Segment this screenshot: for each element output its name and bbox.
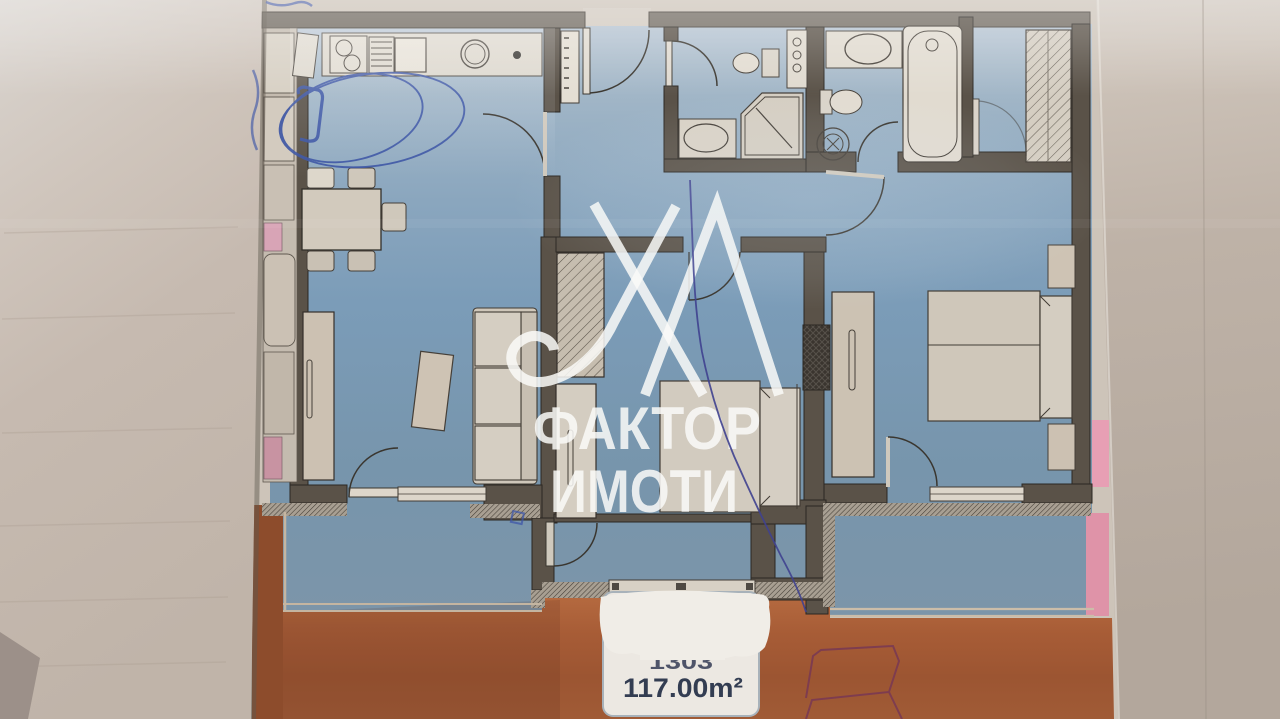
svg-text:ИМОТИ: ИМОТИ <box>550 458 738 525</box>
svg-text:ФАКТОР: ФАКТОР <box>533 395 761 462</box>
svg-text:117.00m²: 117.00m² <box>623 673 743 703</box>
